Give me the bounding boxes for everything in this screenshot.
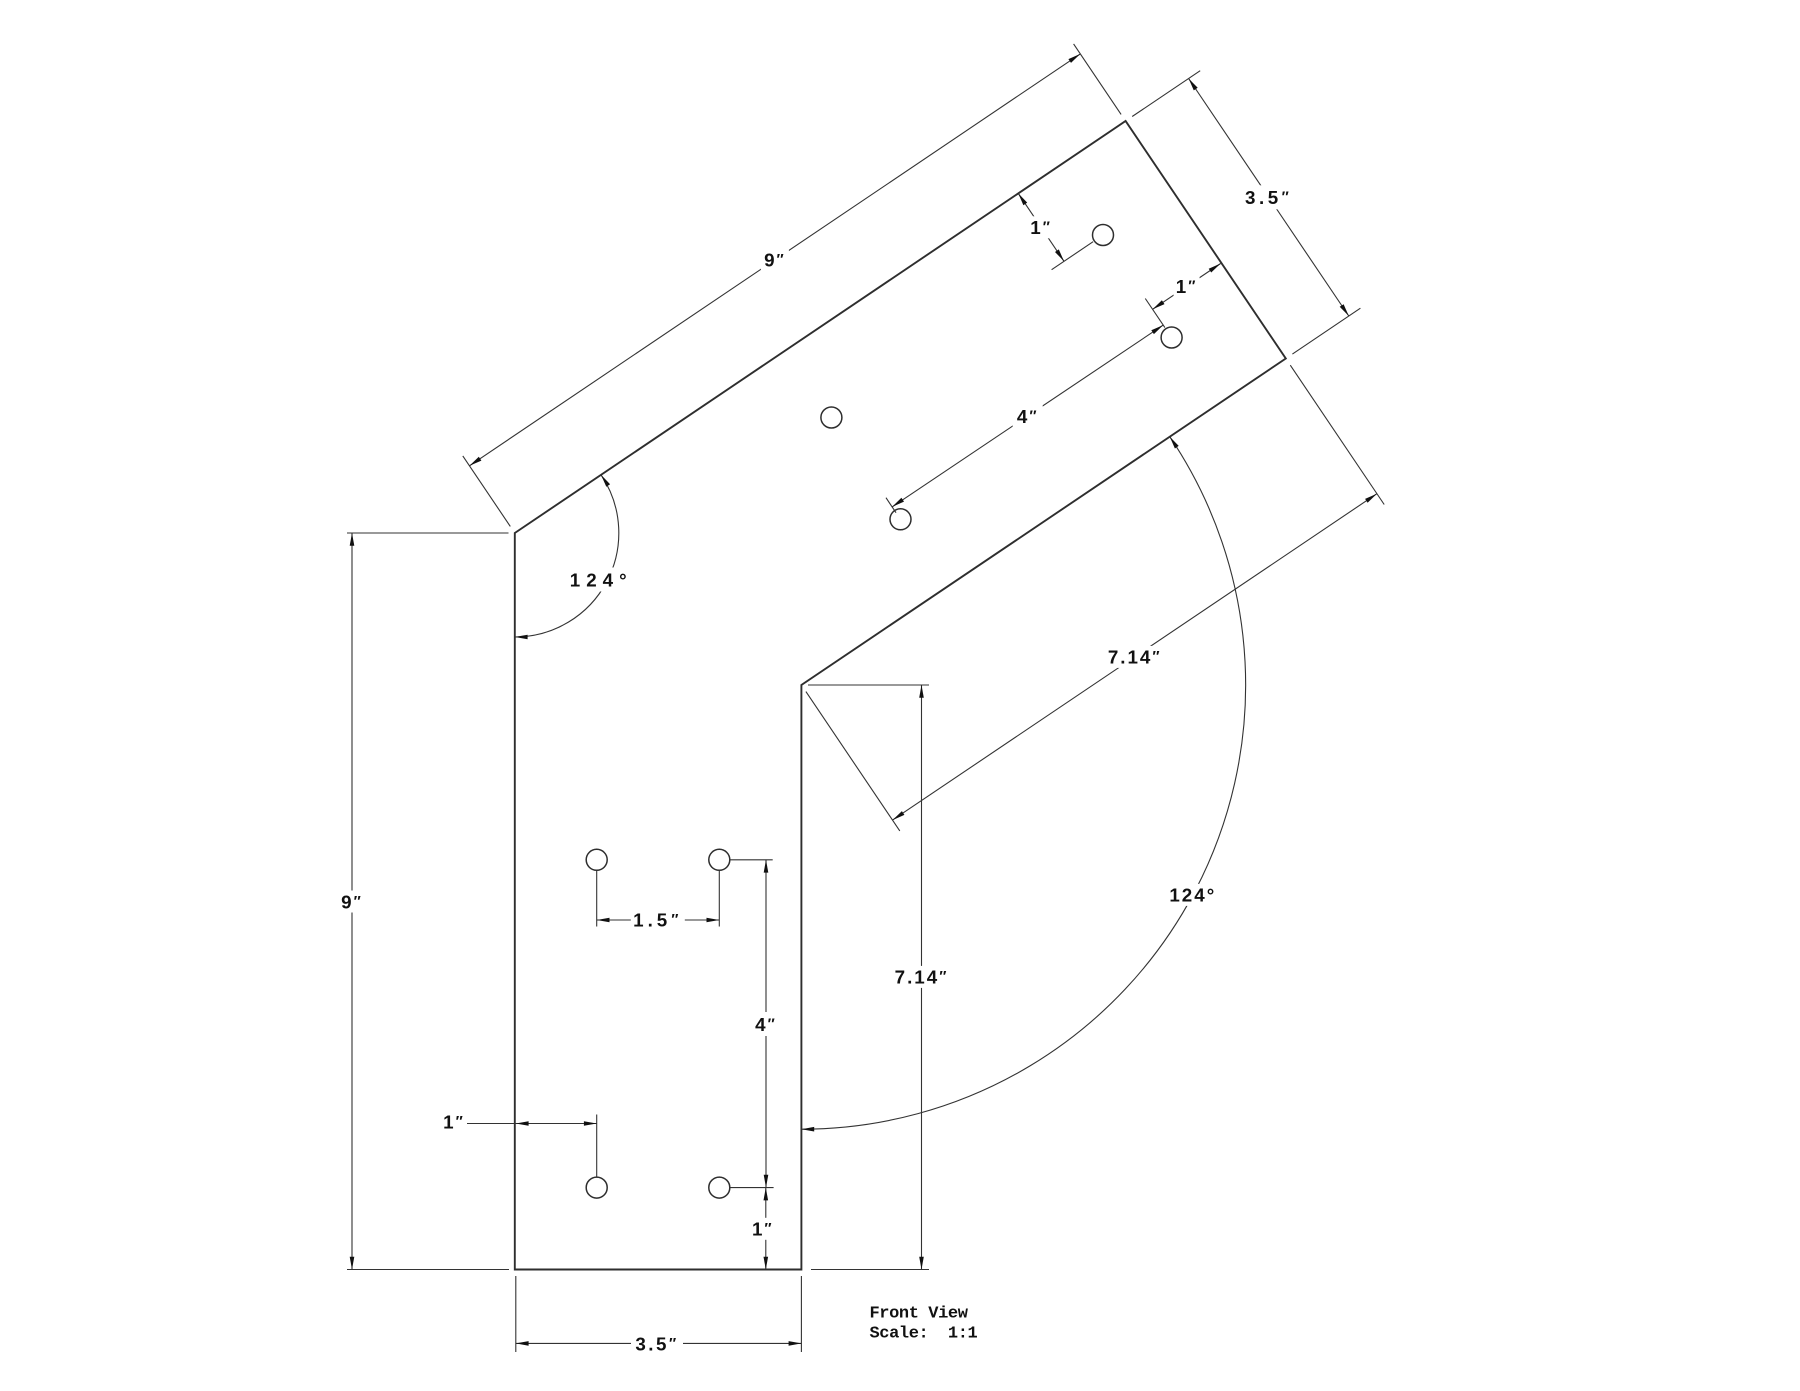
svg-text:4″: 4″ bbox=[755, 1014, 777, 1035]
svg-text:3.5″: 3.5″ bbox=[635, 1333, 678, 1354]
svg-text:4″: 4″ bbox=[1017, 406, 1039, 427]
svg-text:7.14″: 7.14″ bbox=[1108, 647, 1162, 668]
svg-text:1″: 1″ bbox=[443, 1111, 465, 1132]
svg-text:Scale: 1:1: Scale: 1:1 bbox=[870, 1325, 978, 1344]
svg-text:1″: 1″ bbox=[1176, 276, 1198, 297]
svg-text:124°: 124° bbox=[1169, 885, 1216, 906]
svg-text:Front View: Front View bbox=[870, 1305, 969, 1324]
svg-text:1″: 1″ bbox=[1030, 217, 1052, 238]
svg-text:3.5″: 3.5″ bbox=[1245, 187, 1292, 208]
svg-text:9″: 9″ bbox=[341, 891, 363, 912]
svg-text:1″: 1″ bbox=[752, 1219, 774, 1240]
svg-text:7.14″: 7.14″ bbox=[895, 967, 949, 988]
svg-text:1.5″: 1.5″ bbox=[633, 909, 682, 930]
svg-text:9″: 9″ bbox=[764, 250, 786, 271]
svg-text:124°: 124° bbox=[570, 569, 633, 590]
